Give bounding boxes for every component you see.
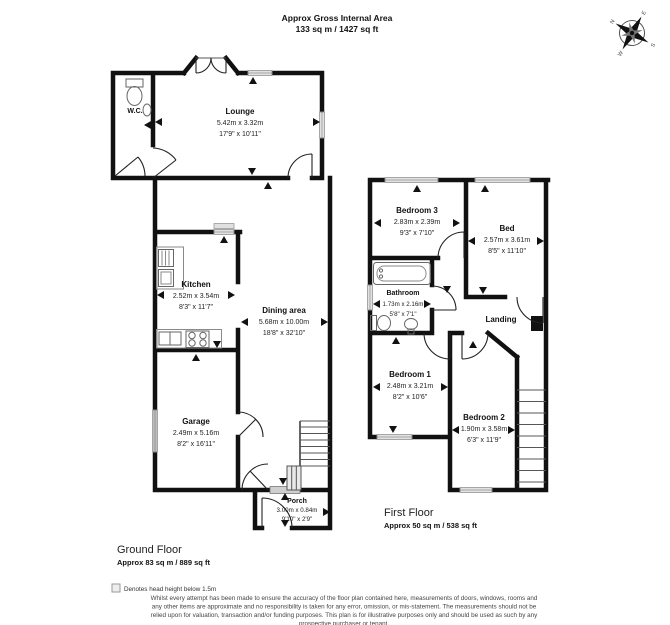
bed-label: Bed 2.57m x 3.61m 8'5" x 11'10" — [484, 224, 530, 255]
understairs-cupboard — [287, 466, 301, 490]
svg-text:8'5" x 11'10": 8'5" x 11'10" — [488, 248, 526, 255]
svg-text:9'3" x 7'10": 9'3" x 7'10" — [400, 230, 435, 237]
gross-internal-area-title: Approx Gross Internal Area — [282, 13, 393, 23]
french-door-right-arc — [211, 58, 226, 73]
bedroom2-label: Bedroom 2 1.90m x 3.58m 6'3" x 11'9" — [461, 413, 507, 444]
french-door-left-arc — [196, 58, 211, 73]
compass-w-label: W — [617, 49, 625, 57]
disclaimer-line-2: any other items are approximate and no r… — [152, 604, 537, 611]
head-height-legend-icon — [112, 584, 120, 592]
svg-text:2.48m x 3.21m: 2.48m x 3.21m — [387, 383, 433, 390]
footer: Denotes head height below 1.5m Whilst ev… — [112, 584, 538, 625]
svg-text:8'3" x 11'7": 8'3" x 11'7" — [179, 304, 213, 311]
ground-floor-walls — [113, 58, 330, 528]
chimney-breast — [531, 316, 543, 331]
svg-text:Garage: Garage — [182, 417, 210, 426]
svg-text:Bathroom: Bathroom — [386, 290, 419, 297]
bathroom-fixtures — [371, 263, 431, 335]
floorplan-page: Approx Gross Internal Area 133 sq m / 14… — [0, 0, 670, 625]
svg-text:9'10" x 2'9": 9'10" x 2'9" — [282, 516, 313, 523]
svg-text:2.49m x 5.16m: 2.49m x 5.16m — [173, 430, 219, 437]
svg-text:5.68m x 10.00m: 5.68m x 10.00m — [259, 319, 309, 326]
first-floor-title: First Floor — [384, 507, 434, 519]
ground-floor-title: Ground Floor — [117, 544, 182, 556]
gross-internal-area-value: 133 sq m / 1427 sq ft — [296, 24, 379, 34]
svg-text:2.83m x 2.39m: 2.83m x 2.39m — [394, 219, 440, 226]
lounge-label: Lounge 5.42m x 3.32m 17'9" x 10'11" — [217, 107, 263, 138]
pedestal-sink-icon — [405, 319, 418, 330]
compass-s-label: S — [650, 42, 657, 48]
svg-text:1.73m x 2.16m: 1.73m x 2.16m — [383, 301, 424, 308]
toilet-tank-icon — [126, 79, 143, 87]
first-floor-walls — [370, 180, 548, 490]
svg-text:Bed: Bed — [499, 224, 514, 233]
lounge-dining-door-arc — [288, 154, 312, 178]
svg-text:8'2" x 16'11": 8'2" x 16'11" — [177, 441, 215, 448]
svg-text:Lounge: Lounge — [226, 107, 255, 116]
kitchen-label: Kitchen 2.52m x 3.54m 8'3" x 11'7" — [173, 280, 219, 311]
dining-area-label: Dining area 5.68m x 10.00m 18'8" x 32'10… — [259, 306, 309, 337]
dining-porch-door-arc — [242, 464, 268, 490]
garage-door — [153, 410, 158, 452]
hall-door-arc — [153, 148, 176, 178]
bathroom-door-arc — [432, 286, 456, 310]
first-floor-plan: Bedroom 3 2.83m x 2.39m 9'3" x 7'10" Bed… — [368, 178, 548, 530]
wc-door-arc — [115, 157, 145, 176]
compass-rose-icon: N E S W — [597, 0, 669, 70]
garage-label: Garage 2.49m x 5.16m 8'2" x 16'11" — [173, 417, 219, 448]
svg-text:2.52m x 3.54m: 2.52m x 3.54m — [173, 293, 219, 300]
garage-dining-door-arc — [238, 412, 263, 437]
svg-text:Bedroom 2: Bedroom 2 — [463, 413, 505, 422]
head-height-note: Denotes head height below 1.5m — [124, 586, 216, 593]
disclaimer-line-1: Whilst every attempt has been made to en… — [151, 595, 538, 602]
first-floor-area: Approx 50 sq m / 538 sq ft — [384, 521, 477, 530]
svg-text:2.57m x 3.61m: 2.57m x 3.61m — [484, 237, 530, 244]
svg-text:8'2" x 10'6": 8'2" x 10'6" — [393, 394, 428, 401]
svg-text:Kitchen: Kitchen — [181, 280, 210, 289]
floor-plan-canvas: Approx Gross Internal Area 133 sq m / 14… — [0, 0, 670, 625]
compass-n-label: N — [609, 19, 616, 25]
bedroom3-label: Bedroom 3 2.83m x 2.39m 9'3" x 7'10" — [394, 206, 440, 237]
porch-label: Porch 3.00m x 0.84m 9'10" x 2'9" — [277, 498, 318, 523]
bathroom-label: Bathroom 1.73m x 2.16m 5'8" x 7'1" — [383, 290, 424, 318]
ground-floor-stairs — [287, 421, 330, 490]
wc-basin-icon — [143, 104, 151, 116]
wc-label: W.C. — [127, 108, 142, 115]
ground-floor-plan: W.C. Lounge 5.42m x 3.32m 17'9" x 10'11"… — [113, 58, 330, 567]
bedroom1-door-arc — [424, 333, 450, 359]
bedroom1-label: Bedroom 1 2.48m x 3.21m 8'2" x 10'6" — [387, 370, 433, 401]
ground-floor-area: Approx 83 sq m / 889 sq ft — [117, 558, 210, 567]
first-floor-stairs — [517, 390, 546, 482]
svg-text:Bedroom 3: Bedroom 3 — [396, 206, 438, 215]
disclaimer-line-4: prospective purchaser or tenant. — [299, 621, 390, 625]
kitchen-window-sill — [214, 224, 234, 229]
svg-text:18'8" x 32'10": 18'8" x 32'10" — [263, 330, 306, 337]
svg-text:Bedroom 1: Bedroom 1 — [389, 370, 431, 379]
disclaimer-line-3: relied upon for valuation, transaction a… — [151, 612, 539, 619]
toilet-bowl-icon — [127, 87, 142, 106]
svg-text:Dining area: Dining area — [262, 306, 306, 315]
svg-text:17'9" x 10'11": 17'9" x 10'11" — [219, 131, 261, 138]
compass-e-label: E — [641, 10, 648, 16]
svg-text:5.42m x 3.32m: 5.42m x 3.32m — [217, 120, 263, 127]
header: Approx Gross Internal Area 133 sq m / 14… — [282, 13, 393, 34]
landing-label: Landing — [485, 315, 516, 324]
svg-text:1.90m x 3.58m: 1.90m x 3.58m — [461, 426, 507, 433]
bedroom3-door-arc — [438, 232, 464, 258]
svg-text:Porch: Porch — [287, 498, 307, 505]
svg-text:3.00m x 0.84m: 3.00m x 0.84m — [277, 507, 318, 514]
svg-text:5'8" x 7'1": 5'8" x 7'1" — [389, 311, 416, 318]
svg-text:6'3" x 11'9": 6'3" x 11'9" — [467, 437, 501, 444]
